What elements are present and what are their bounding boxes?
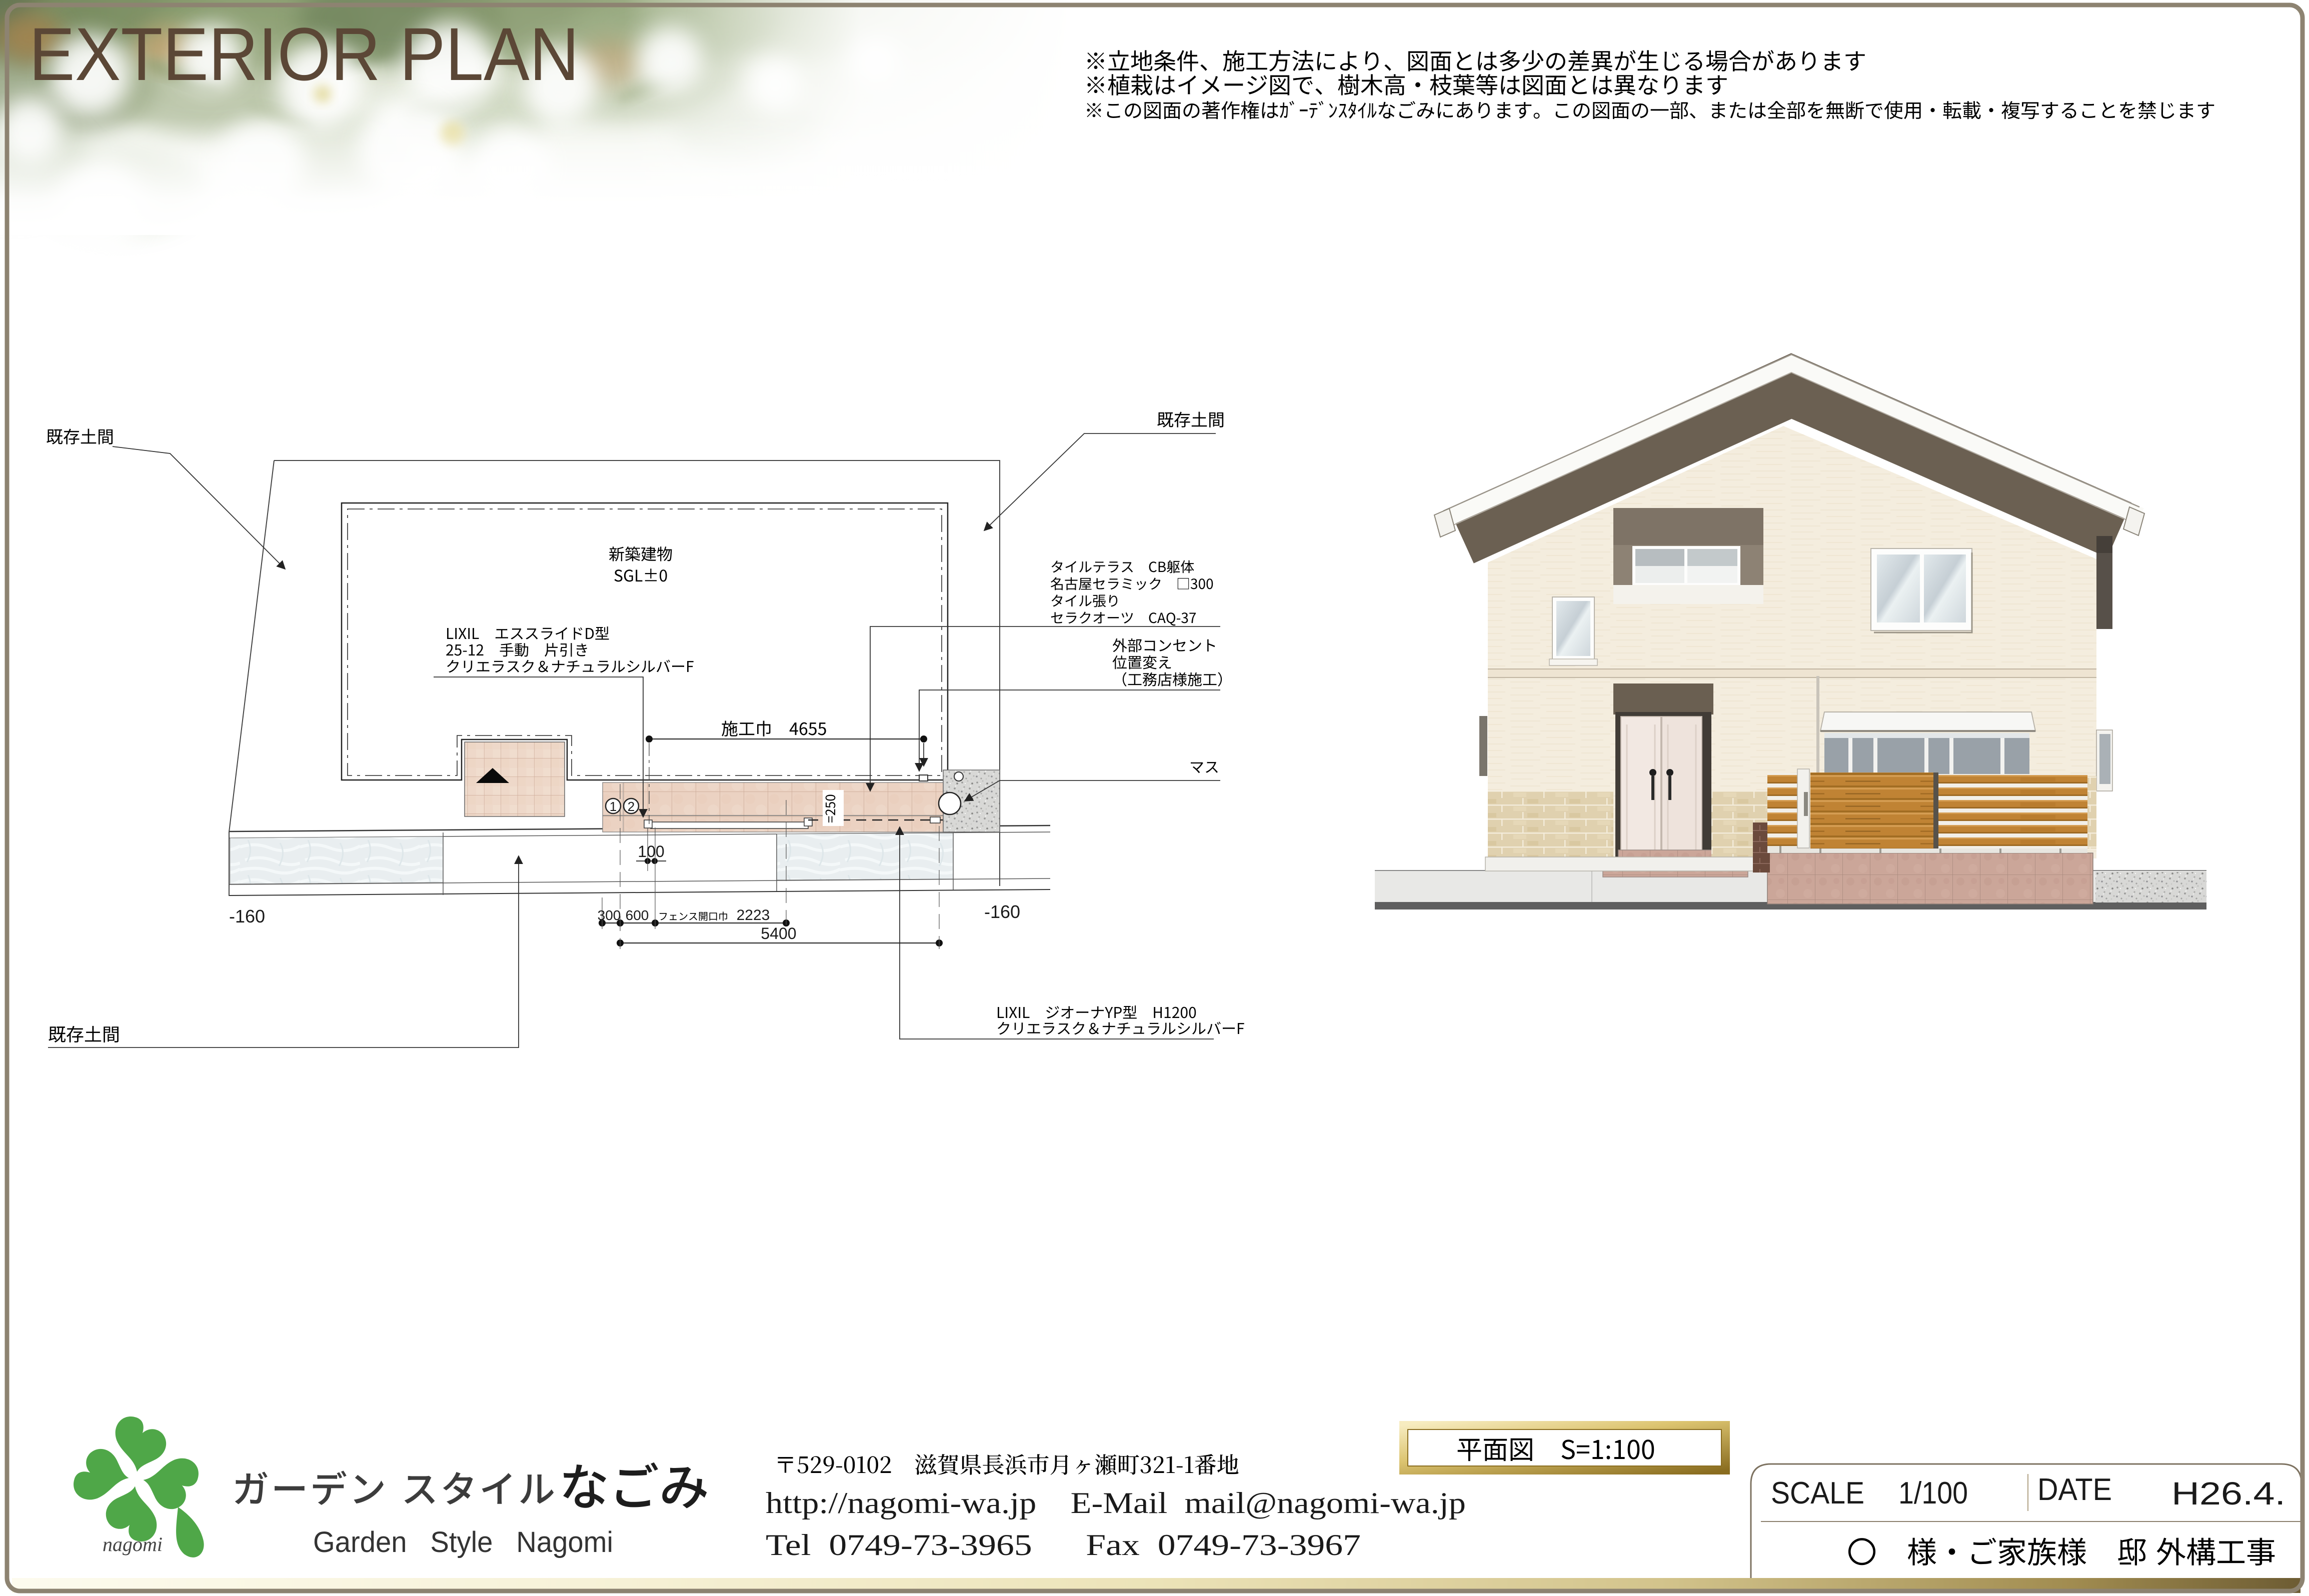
svg-text:1/100: 1/100 [1898, 1476, 1968, 1510]
svg-text:DATE: DATE [2037, 1472, 2112, 1507]
svg-text:600: 600 [626, 907, 649, 923]
svg-text:http://nagomi-wa.jp E-Mail: http://nagomi-wa.jp E-Mail mail@nagomi-w… [766, 1486, 1466, 1519]
svg-text:2223: 2223 [737, 907, 770, 923]
svg-text:SCALE: SCALE [1771, 1476, 1864, 1510]
svg-text:-160: -160 [984, 901, 1020, 922]
svg-text:300: 300 [598, 907, 621, 923]
svg-text:Garden Style Nagomi: Garden Style Nagomi [313, 1526, 613, 1558]
svg-text:100: 100 [638, 842, 664, 860]
svg-text:Tel 0749-73-3965 Fax 07: Tel 0749-73-3965 Fax 0749-73-3967 [766, 1528, 1361, 1561]
svg-text:1: 1 [610, 799, 617, 814]
svg-text:2: 2 [628, 799, 635, 814]
svg-text:EXTERIOR PLAN: EXTERIOR PLAN [29, 12, 579, 96]
svg-text:nagomi: nagomi [103, 1533, 163, 1555]
svg-text:-160: -160 [229, 906, 265, 926]
svg-text:5400: 5400 [761, 924, 796, 942]
svg-text:H26.4.: H26.4. [2171, 1475, 2285, 1511]
